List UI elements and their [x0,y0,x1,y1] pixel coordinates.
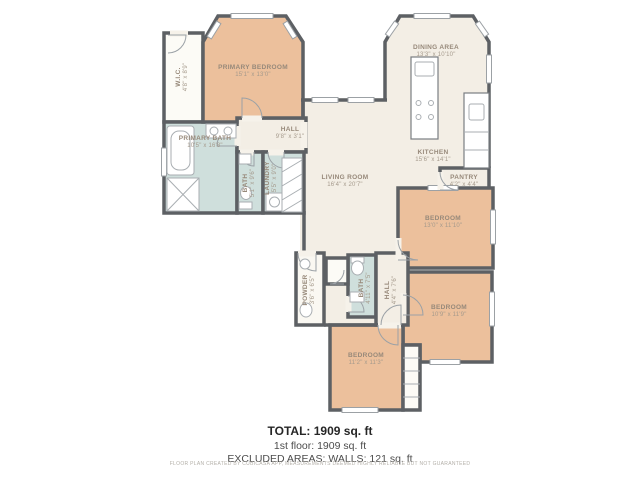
room-label-bedroom-bottom-right: BEDROOM10'9" x 11'9" [431,304,467,320]
room-label-hall-bottom: HALL4'4" x 7'6" [384,276,400,304]
room-label-primary-bedroom: PRIMARY BEDROOM15'1" x 13'0" [218,64,288,80]
room-label-bedroom-bottom: BEDROOM11'2" x 11'3" [348,352,384,368]
floor-plan-drawing [0,0,640,480]
room-label-bath-bottom: BATH4'11" x 7'5" [358,272,374,304]
sink [239,154,251,164]
room-label-laundry: LAUNDRY5'5" x 9'0" [264,161,280,195]
room-label-hall-top: HALL9'8" x 3'1" [276,126,304,142]
room-label-primary-bath: PRIMARY BATH10'5" x 16'8" [179,135,232,151]
total-area-text: TOTAL: 1909 sq. ft [0,424,640,438]
room-label-living: LIVING ROOM16'4" x 20'7" [322,174,369,190]
closet-middle [326,258,348,284]
closet-bottom [403,345,420,410]
first-floor-area-text: 1st floor: 1909 sq. ft [0,440,640,452]
powder-sink [300,259,310,269]
window [231,14,273,19]
room-label-pantry: PANTRY4'2" x 4'4" [450,174,478,190]
room-label-wic: W.I.C.4'8" x 8'9" [175,63,191,91]
washer [266,193,283,211]
room-label-bedroom-right: BEDROOM13'0" x 11'10" [424,215,463,231]
disclaimer-text: FLOOR PLAN CREATED BY CUBICASA APP, MEAS… [0,461,640,467]
room-label-powder: POWDER3'6" x 6'5" [302,274,318,305]
floor-plan-page: PRIMARY BEDROOM15'1" x 13'0" W.I.C.4'8" … [0,0,640,480]
room-label-kitchen: KITCHEN15'6" x 14'1" [415,149,451,165]
room-label-bath-left: BATH5'1" x 9'6" [242,169,258,197]
room-label-dining: DINING AREA13'3" x 10'10" [413,44,459,60]
area-summary: TOTAL: 1909 sq. ft 1st floor: 1909 sq. f… [0,424,640,466]
